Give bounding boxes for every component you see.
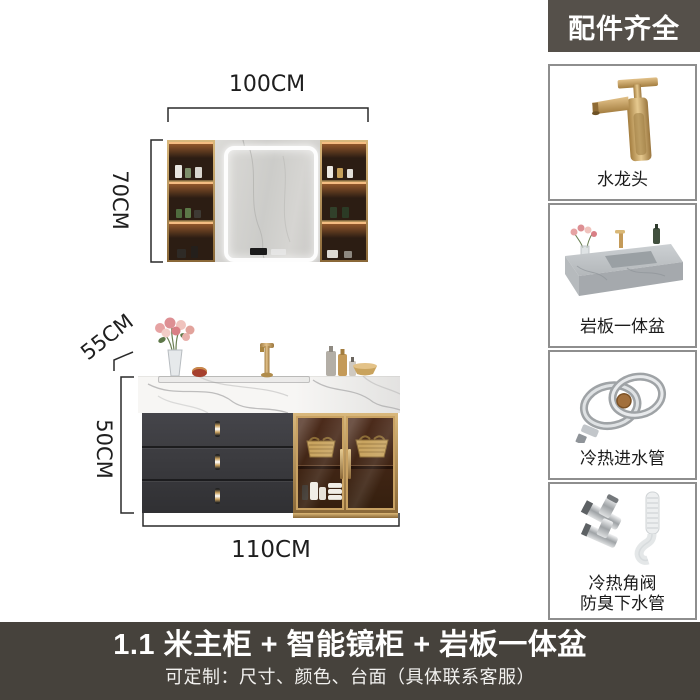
product-showcase: 100CM 70CM 55CM 50CM 110CM	[0, 0, 548, 622]
accessory-label: 冷热进水管	[580, 449, 665, 469]
vanity-height-label: 50CM	[91, 417, 117, 481]
bottle	[185, 208, 191, 218]
accessory-label: 岩板一体盆	[580, 317, 665, 337]
bottle	[185, 168, 191, 178]
accessory-label: 水龙头	[597, 170, 648, 190]
accessory-label: 冷热角阀 防臭下水管	[580, 574, 665, 614]
bottle	[342, 207, 349, 218]
glass-door-right	[346, 416, 395, 510]
folded-towel	[328, 483, 342, 488]
bottle	[337, 168, 343, 178]
stone-basin-icon	[557, 218, 689, 304]
left-shelf-unit	[167, 140, 215, 262]
bottle	[347, 169, 353, 178]
jar	[191, 246, 198, 258]
shelf-cell	[322, 142, 366, 180]
drawer-handle	[215, 454, 220, 470]
box	[327, 250, 338, 258]
mirror-width-bracket	[168, 108, 368, 122]
shelf-cell	[322, 182, 366, 220]
bottle	[327, 166, 333, 178]
accessory-card-faucet: 水龙头	[548, 64, 697, 201]
mirror-height-label: 70CM	[107, 168, 133, 232]
bottle	[310, 482, 318, 500]
jar	[344, 251, 352, 258]
accessories-header: 配件齐全	[548, 0, 700, 52]
rattan-basket	[354, 432, 390, 458]
bottle	[194, 210, 201, 218]
mirror-height-bracket	[151, 140, 163, 262]
right-shelf-unit	[320, 140, 368, 262]
marble-countertop	[138, 376, 400, 413]
bottle	[319, 487, 326, 500]
mirror-cabinet-image	[167, 140, 368, 262]
angle-valves-drain-icon	[568, 484, 678, 574]
vanity-height-bracket	[121, 377, 134, 513]
drawer-handle	[215, 488, 220, 504]
drawer-handle	[215, 421, 220, 437]
shelf-cell	[169, 222, 213, 260]
vanity-cabinet-body	[142, 413, 398, 513]
vanity-depth-angle-mark	[114, 352, 133, 371]
accessories-panel: 配件齐全	[548, 0, 700, 622]
rattan-basket	[305, 434, 337, 458]
folded-towel	[328, 495, 342, 500]
bottle	[195, 167, 202, 178]
mirror-width-label: 100CM	[215, 72, 319, 97]
bottle	[175, 165, 182, 178]
led-mirror	[224, 146, 318, 262]
door-handle	[340, 449, 343, 479]
bottle	[176, 209, 182, 218]
integrated-sink-outline	[158, 376, 310, 383]
gold-faucet-icon	[580, 72, 666, 164]
clock-display	[250, 248, 267, 255]
bottom-banner: 1.1 米主柜 + 智能镜柜 + 岩板一体盆 可定制：尺寸、颜色、台面（具体联系…	[0, 622, 700, 700]
jar	[177, 249, 186, 258]
shelf-cell	[322, 222, 366, 260]
vanity-cabinet-image	[138, 316, 400, 519]
accessory-card-valves: 冷热角阀 防臭下水管	[548, 482, 697, 620]
glass-cabinet	[293, 413, 398, 513]
banner-title: 1.1 米主柜 + 智能镜柜 + 岩板一体盆	[113, 627, 586, 663]
product-infographic: 100CM 70CM 55CM 50CM 110CM	[0, 0, 700, 700]
banner-subtitle: 可定制：尺寸、颜色、台面（具体联系客服）	[165, 666, 535, 688]
braided-hoses-icon	[568, 357, 678, 443]
bottle	[330, 207, 337, 218]
bottle	[302, 485, 308, 500]
accessory-card-basin: 岩板一体盆	[548, 203, 697, 348]
accessory-card-hoses: 冷热进水管	[548, 350, 697, 480]
gold-base-trim	[293, 513, 398, 518]
touch-control	[271, 249, 286, 255]
cosmetic-jar	[192, 367, 207, 377]
drawer-panel	[142, 413, 293, 513]
shelf-cell	[169, 182, 213, 220]
glass-door-left	[296, 416, 344, 510]
gold-faucet	[257, 340, 277, 378]
folded-towel	[328, 489, 342, 494]
gold-ornament	[351, 360, 379, 378]
door-handle	[348, 449, 351, 479]
vanity-width-label: 110CM	[211, 537, 331, 563]
shelf-cell	[169, 142, 213, 180]
